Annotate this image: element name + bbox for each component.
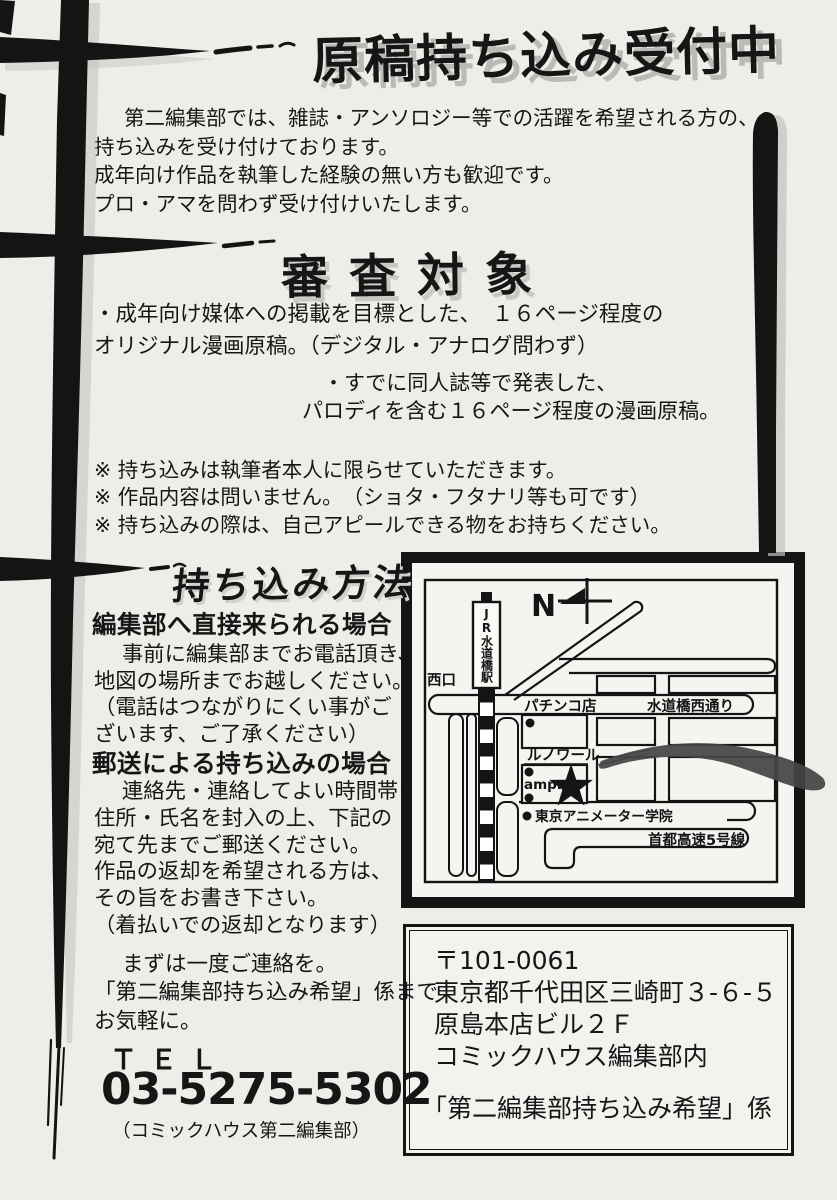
address-box-inner: 〒101-0061 東京都千代田区三崎町３-６-５ 原島本店ビル２Ｆ コミックハ… bbox=[409, 930, 788, 1150]
review-stroke-dashes bbox=[224, 241, 274, 246]
left-brush-dry-tail bbox=[48, 1040, 64, 1158]
title-stroke-shadow bbox=[5, 45, 215, 71]
mail-line: 連絡先・連絡してよい時間帯・ bbox=[94, 779, 420, 806]
review-section-heading: 審査対象 bbox=[281, 235, 554, 308]
access-map-drawing: N bbox=[401, 552, 805, 908]
method-stroke bbox=[0, 557, 145, 581]
bullet-line: オリジナル漫画原稿。（デジタル・アナログ問わず） bbox=[94, 331, 663, 363]
note-line: ※ 持ち込みは執筆者本人に限らせていただきます。 bbox=[94, 457, 671, 484]
tel-number: 03-5275-5302 bbox=[101, 1064, 432, 1115]
pachinko-label: パチンコ店 bbox=[524, 697, 597, 715]
intro-line: 持ち込みを受け付けております。 bbox=[94, 133, 759, 162]
mail-line: （着払いでの返却となります） bbox=[94, 913, 420, 940]
station-label: JR水道橋駅 bbox=[473, 602, 500, 688]
postal-code: 〒101-0061 bbox=[434, 945, 779, 977]
address-line: 東京都千代田区三崎町３-６-５ bbox=[434, 977, 779, 1009]
review-notes: ※ 持ち込みは執筆者本人に限らせていただきます。 ※ 作品内容は問いません。 （… bbox=[94, 457, 671, 539]
scanned-page: { "colors": { "paper": "#efede8", "ink":… bbox=[0, 0, 837, 1200]
title-stroke-dashes bbox=[216, 43, 294, 52]
street-label: 水道橋西通り bbox=[647, 697, 734, 715]
contact-paragraph: まずは一度ご連絡を。 「第二編集部持ち込み希望」係まで お気軽に。 bbox=[94, 951, 438, 1036]
bullet-line: ・すでに同人誌等で発表した、 bbox=[302, 370, 720, 398]
address-line: 原島本店ビル２Ｆ bbox=[434, 1009, 779, 1041]
visit-line: 地図の場所までお越しください。 bbox=[94, 669, 419, 696]
address-line: コミックハウス編集部内 bbox=[434, 1041, 779, 1073]
mail-subheading: 郵送による持ち込みの場合 bbox=[92, 745, 391, 780]
contact-line: 「第二編集部持ち込み希望」係まで bbox=[94, 979, 438, 1007]
edge-brush-mark bbox=[0, 93, 6, 136]
title-stroke bbox=[0, 37, 210, 63]
bullet-line: ・成年向け媒体への掲載を目標とした、 １６ページ程度の bbox=[94, 299, 663, 331]
mail-line: 宛て先までご郵送ください。 bbox=[94, 833, 420, 860]
intro-line: 第二編集部では、雑誌・アンソロジー等での活躍を希望される方の、 bbox=[94, 104, 759, 133]
mail-line: その旨をお書き下さい。 bbox=[94, 886, 420, 913]
method-section-heading: 持ち込み方法 bbox=[170, 552, 416, 610]
note-line: ※ 作品内容は問いません。 （ショタ・フタナリ等も可です） bbox=[94, 484, 671, 511]
mail-line: 作品の返却を希望される方は、 bbox=[94, 859, 420, 886]
corner-brush-mark bbox=[0, 0, 15, 35]
tel-note: （コミックハウス第二編集部） bbox=[112, 1117, 370, 1143]
railway-top-mark bbox=[481, 592, 492, 602]
review-stroke bbox=[0, 232, 218, 258]
intro-line: 成年向け作品を執筆した経験の無い方も歓迎です。 bbox=[94, 161, 759, 190]
visit-paragraph: 事前に編集部までお電話頂き、 地図の場所までお越しください。 （電話はつながりに… bbox=[94, 642, 419, 748]
page-title: 原稿持ち込み受付中 bbox=[311, 9, 781, 94]
intro-paragraph: 第二編集部では、雑誌・アンソロジー等での活躍を希望される方の、 持ち込みを受け付… bbox=[94, 104, 759, 218]
contact-line: お気軽に。 bbox=[94, 1008, 438, 1036]
review-bullet-parody: ・すでに同人誌等で発表した、 パロディを含む１６ページ程度の漫画原稿。 bbox=[302, 370, 720, 425]
visit-line: （電話はつながりにくい事がご bbox=[94, 695, 419, 722]
school-label: 東京アニメーター学院 bbox=[535, 808, 673, 825]
west-exit-label: 西口 bbox=[427, 672, 456, 689]
mail-paragraph: 連絡先・連絡してよい時間帯・ 住所・氏名を封入の上、下記の 宛て先までご郵送くだ… bbox=[94, 779, 420, 940]
left-brush-stroke bbox=[51, 0, 89, 1048]
review-bullet-original: ・成年向け媒体への掲載を目標とした、 １６ページ程度の オリジナル漫画原稿。（デ… bbox=[94, 299, 663, 362]
visit-line: 事前に編集部までお電話頂き、 bbox=[94, 642, 419, 669]
highway-label: 首都高速5号線 bbox=[648, 831, 746, 849]
address-box: 〒101-0061 東京都千代田区三崎町３-６-５ 原島本店ビル２Ｆ コミックハ… bbox=[403, 924, 794, 1156]
right-brush-shadow bbox=[762, 115, 787, 556]
bullet-line: パロディを含む１６ページ程度の漫画原稿。 bbox=[302, 398, 720, 426]
visit-subheading: 編集部へ直接来られる場合 bbox=[92, 606, 392, 641]
contact-line: まずは一度ご連絡を。 bbox=[94, 951, 438, 979]
access-map: N bbox=[401, 552, 805, 908]
note-line: ※ 持ち込みの際は、自己アピールできる物をお持ちください。 bbox=[94, 512, 671, 539]
mail-line: 住所・氏名を封入の上、下記の bbox=[94, 806, 420, 833]
north-label: N bbox=[531, 589, 556, 624]
intro-line: プロ・アマを問わず受け付けいたします。 bbox=[94, 190, 759, 219]
address-recipient: 「第二編集部持ち込み希望」係 bbox=[422, 1093, 779, 1125]
renoir-label: ルノワール bbox=[527, 748, 600, 764]
ampm-label: ampm bbox=[524, 777, 571, 793]
